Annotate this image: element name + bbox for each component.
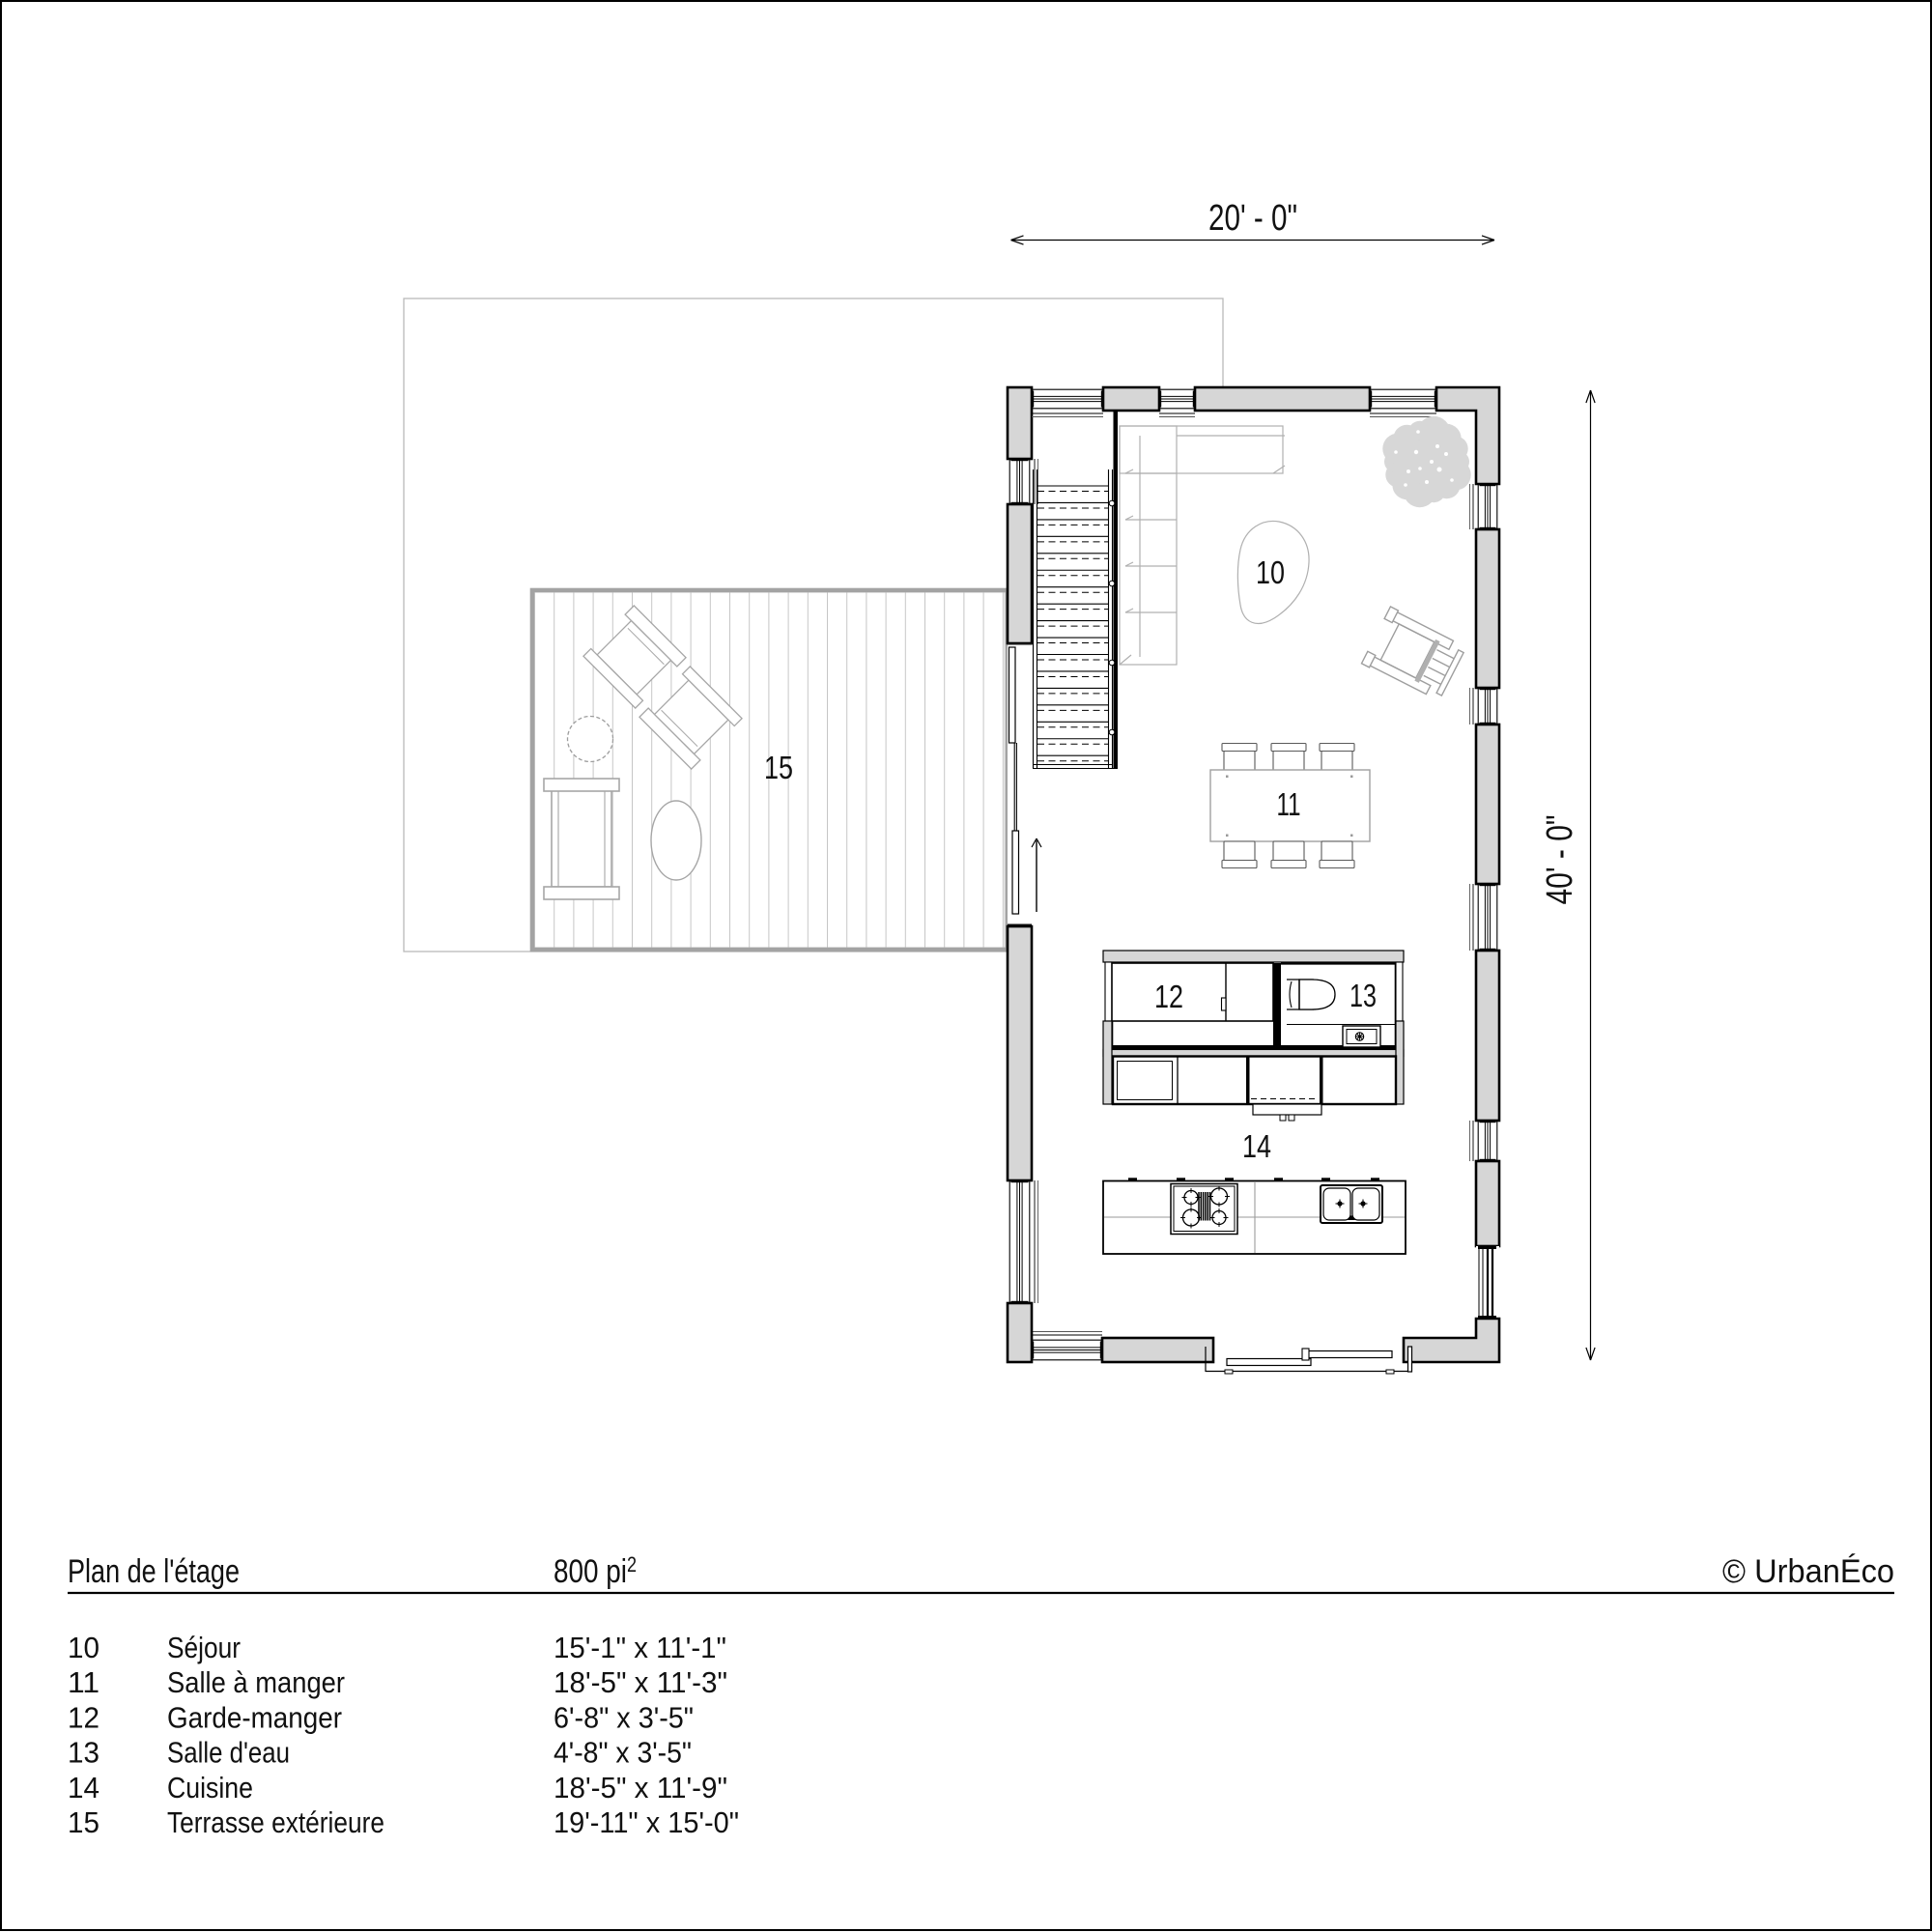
svg-text:13: 13 bbox=[1350, 978, 1377, 1013]
svg-text:Plan de l'étage: Plan de l'étage bbox=[68, 1553, 240, 1590]
svg-text:© UrbanÉco: © UrbanÉco bbox=[1722, 1553, 1894, 1590]
svg-text:11: 11 bbox=[1277, 786, 1301, 822]
svg-text:14: 14 bbox=[1242, 1128, 1271, 1164]
svg-text:14: 14 bbox=[68, 1771, 99, 1804]
svg-text:Terrasse extérieure: Terrasse extérieure bbox=[167, 1805, 384, 1839]
svg-text:800 pi2: 800 pi2 bbox=[554, 1552, 637, 1590]
svg-text:15: 15 bbox=[764, 750, 793, 785]
svg-text:10: 10 bbox=[68, 1631, 99, 1664]
svg-text:6'-8" x 3'-5": 6'-8" x 3'-5" bbox=[554, 1700, 694, 1734]
svg-text:15'-1" x 11'-1": 15'-1" x 11'-1" bbox=[554, 1631, 726, 1664]
svg-text:Salle d'eau: Salle d'eau bbox=[167, 1736, 290, 1770]
svg-text:13: 13 bbox=[68, 1736, 99, 1770]
svg-text:12: 12 bbox=[1154, 979, 1183, 1014]
svg-text:19'-11" x 15'-0": 19'-11" x 15'-0" bbox=[554, 1805, 739, 1839]
svg-text:11: 11 bbox=[68, 1665, 99, 1699]
svg-text:12: 12 bbox=[68, 1700, 99, 1734]
svg-text:Garde-manger: Garde-manger bbox=[167, 1700, 342, 1734]
svg-text:Cuisine: Cuisine bbox=[167, 1771, 253, 1804]
svg-text:15: 15 bbox=[68, 1805, 99, 1839]
svg-text:18'-5" x 11'-9": 18'-5" x 11'-9" bbox=[554, 1771, 727, 1804]
svg-text:4'-8" x 3'-5": 4'-8" x 3'-5" bbox=[554, 1736, 692, 1770]
svg-text:Salle à manger: Salle à manger bbox=[167, 1665, 345, 1699]
svg-text:Séjour: Séjour bbox=[167, 1631, 241, 1664]
svg-text:40' - 0": 40' - 0" bbox=[1540, 815, 1580, 905]
svg-text:20' - 0": 20' - 0" bbox=[1208, 198, 1297, 239]
svg-text:10: 10 bbox=[1256, 554, 1285, 590]
svg-text:18'-5" x 11'-3": 18'-5" x 11'-3" bbox=[554, 1665, 727, 1699]
